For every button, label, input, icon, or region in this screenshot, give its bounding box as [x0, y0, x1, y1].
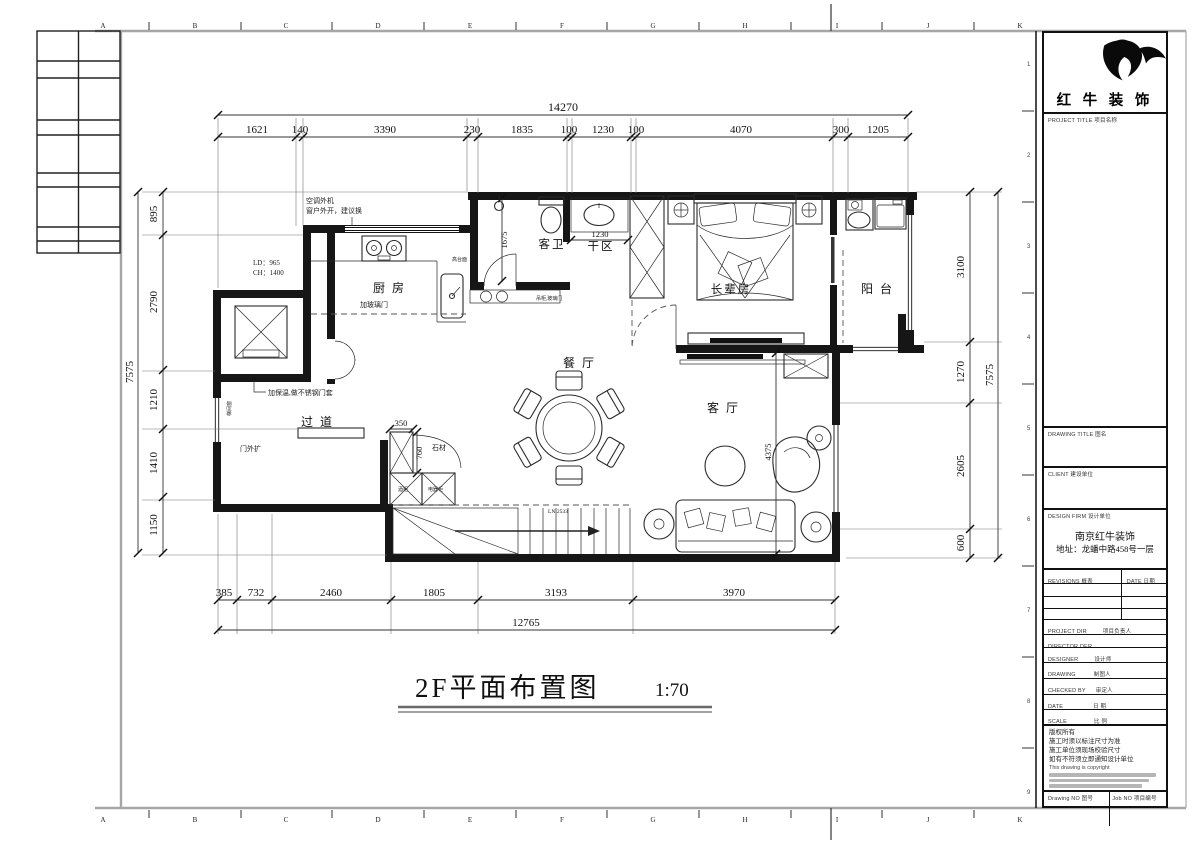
grid-letter: E — [468, 816, 472, 824]
grid-letter: K — [1017, 22, 1022, 30]
dim: 300 — [833, 124, 850, 136]
sheet-title: 2F平面布置图 1:70 — [398, 673, 712, 712]
note-high-counter: 高台面 — [452, 256, 467, 263]
grid-letters-bottom: A B C D E F G H I J K — [100, 816, 1022, 824]
chair — [596, 436, 625, 468]
grid-number: 8 — [1027, 699, 1031, 705]
copyright-line: 施工时须以标注尺寸为准 — [1049, 738, 1166, 746]
floor-plan-canvas: A B C D E F G H I J K A B C D E F G H I … — [0, 0, 1200, 843]
tb-label: Job NO 项目编号 — [1112, 794, 1156, 802]
stairs: LN:2533 — [393, 505, 632, 554]
washing-machine — [875, 198, 906, 229]
elevator: LD：965 CH：1400 — [235, 259, 287, 358]
grid-letter: F — [560, 816, 564, 824]
dim: 1210 — [148, 389, 160, 412]
grid-letter: G — [650, 22, 655, 30]
lounge-chair — [773, 437, 820, 492]
dim: 1270 — [955, 361, 967, 384]
tb-label: DRAWING — [1044, 670, 1076, 678]
note-ac-2: 窗户外开，建议换 — [306, 206, 362, 215]
dim: 1621 — [246, 124, 268, 136]
tb-label: PROJECT TITLE 项目名称 — [1044, 114, 1166, 124]
elevator-note-ld: LD：965 — [253, 259, 280, 267]
dim: 1835 — [511, 124, 534, 136]
speaker-left — [644, 509, 674, 539]
tb-row-director: DIRECTOR DER — [1044, 634, 1166, 647]
side-table — [807, 426, 831, 450]
tb-row-date: DATE日 期 — [1044, 694, 1166, 709]
dim: 230 — [464, 124, 481, 136]
dim: 3100 — [955, 256, 967, 279]
grid-letter: B — [193, 22, 198, 30]
tb-label: DESIGN FIRM 设计单位 — [1044, 510, 1166, 520]
room-label-living: 客厅 — [707, 400, 745, 415]
copyright-line-en: This drawing is copyright — [1049, 765, 1166, 771]
drawing-sheet: A B C D E F G H I J K A B C D E F G H I … — [0, 0, 1200, 843]
grid-letter: B — [193, 816, 198, 824]
grid-numbers-right: 1 2 3 4 5 6 7 8 9 — [1027, 62, 1031, 796]
grid-letter: H — [742, 22, 747, 30]
firm-name: 南京红牛装饰 — [1044, 528, 1166, 543]
note-hanging-cabinet: 吊柜,玻璃门 — [536, 295, 562, 302]
tb-row-scale: SCALE比 例 — [1044, 709, 1166, 724]
title-block: 红 牛 装 饰 PROJECT TITLE 项目名称 DRAWING TITLE… — [1042, 31, 1168, 808]
chair — [556, 466, 582, 485]
dim: 1805 — [423, 587, 446, 599]
dim: 895 — [148, 205, 160, 222]
sofa-pillow — [684, 508, 704, 528]
grid-number: 2 — [1027, 153, 1031, 159]
tb-label: Drawing NO 图号 — [1048, 794, 1093, 802]
pillow — [753, 203, 791, 227]
pillow — [699, 203, 737, 227]
stove — [362, 236, 406, 261]
note-wine: 酒柜 — [398, 486, 408, 493]
dim: 1410 — [148, 452, 160, 475]
grid-letter: K — [1017, 816, 1022, 824]
blurred-text-bar — [1049, 773, 1156, 777]
dim: 1205 — [867, 124, 890, 136]
toilet-bowl — [541, 207, 561, 233]
stair-note: LN:2533 — [548, 509, 568, 515]
dim-right-total: 7575 — [984, 364, 996, 387]
dim: 3390 — [374, 124, 397, 136]
grid-letters-top: A B C D E F G H I J K — [100, 22, 1022, 30]
sofa-pillow — [707, 513, 726, 532]
dim: 2460 — [320, 587, 343, 599]
chair — [513, 436, 542, 468]
grid-number: 6 — [1027, 517, 1031, 523]
grid-letter: H — [742, 816, 747, 824]
copyright-line: 施工单位须现场校验尺寸 — [1049, 747, 1166, 755]
dim: 3193 — [545, 587, 568, 599]
dining-room: 餐厅 — [513, 355, 625, 485]
chair — [513, 388, 542, 420]
dim: 4070 — [730, 124, 753, 136]
room-label-elder-room: 长辈房 — [711, 282, 752, 296]
tb-section-client: CLIENT 建设单位 — [1044, 466, 1166, 508]
tb-section-project: PROJECT TITLE 项目名称 — [1044, 112, 1166, 426]
grid-number: 3 — [1027, 244, 1031, 250]
note-door-out: 门外扩 — [240, 444, 261, 453]
dim-basin: 1230 — [592, 229, 609, 239]
elder-room: 长辈房 — [668, 194, 822, 344]
dim-right: 3100 1270 2605 600 7575 — [840, 188, 1002, 562]
dim: 3970 — [723, 587, 746, 599]
tb-section-drawing-title: DRAWING TITLE 图名 — [1044, 426, 1166, 466]
blurred-text-bar — [1049, 779, 1149, 783]
dim-bottom: 385 732 2460 1805 3193 3970 12765 — [214, 514, 839, 634]
note-ac-1: 空调外机 — [306, 196, 334, 205]
balcony-door-leaf — [831, 237, 835, 283]
grid-number: 7 — [1027, 608, 1031, 614]
tb-section-firm: DESIGN FIRM 设计单位 南京红牛装饰 地址：龙蟠中路458号一层 — [1044, 508, 1166, 568]
company-name: 红 牛 装 饰 — [1044, 89, 1166, 110]
grid-number: 1 — [1027, 62, 1031, 68]
dim: 2605 — [955, 455, 967, 478]
chair — [556, 371, 582, 390]
page-title: 2F平面布置图 — [415, 673, 600, 703]
corridor: 350 760 酒柜 电器柜 石材 过道 门外扩 梯间窗 加保温,做不锈钢门套 — [226, 377, 461, 505]
dim-left-total: 7575 — [124, 361, 136, 384]
ottoman — [705, 446, 745, 486]
company-logo — [1070, 37, 1192, 87]
dim-cab-w: 350 — [395, 418, 408, 428]
grid-letter: A — [100, 816, 105, 824]
grid-number: 9 — [1027, 790, 1031, 796]
dining-table — [536, 395, 602, 461]
note-stair-window: 梯间窗 — [226, 401, 233, 416]
blurred-text-bar — [1049, 784, 1142, 788]
bench — [298, 428, 364, 438]
grid-letter: D — [375, 22, 380, 30]
grid-letter: A — [100, 22, 105, 30]
firm-address: 地址：龙蟠中路458号一层 — [1044, 543, 1166, 555]
balcony: 阳台 — [843, 198, 906, 343]
note-appliance: 电器柜 — [428, 486, 443, 493]
dim: 140 — [292, 124, 309, 136]
speaker-right — [801, 512, 831, 542]
grid-letter: I — [836, 22, 839, 30]
tb-row-project-dir: PROJECT DIR 项目负责人 — [1044, 619, 1166, 634]
dim-bottom-total: 12765 — [512, 617, 540, 629]
sofa-pillow — [733, 508, 752, 527]
sofa-pillow — [756, 512, 776, 532]
dim-left: 895 2790 1210 1410 1150 7575 — [124, 188, 466, 557]
grid-letter: J — [927, 816, 930, 824]
note-stone: 石材 — [432, 443, 446, 452]
tb-label: 制图人 — [1076, 670, 1111, 678]
dim-bath-height: 1675 — [499, 232, 509, 249]
dim: 2790 — [148, 291, 160, 314]
tb-label: DRAWING TITLE 图名 — [1044, 428, 1166, 438]
dim: 1230 — [592, 124, 615, 136]
closet — [630, 196, 664, 345]
dim: 732 — [248, 587, 265, 599]
dim: 600 — [955, 534, 967, 551]
room-label-dry-area: 干区 — [588, 241, 615, 253]
tb-revisions: REVISIONS 概表 DATE 日期 — [1044, 568, 1166, 619]
margin-boxes — [37, 31, 120, 253]
tb-copyright: 版权所有 施工时须以标注尺寸为准 施工单位须现场校验尺寸 如有不符须立即通知设计… — [1044, 724, 1166, 790]
tv-bedroom — [710, 338, 782, 343]
tv-living — [687, 354, 763, 359]
room-label-guest-bath: 客卫 — [539, 237, 566, 251]
dim-top-total: 14270 — [548, 100, 578, 114]
grid-letter: C — [284, 816, 289, 824]
copyright-line: 版权所有 — [1049, 729, 1166, 737]
tb-row-designer: DESIGNER设计师 — [1044, 647, 1166, 662]
grid-letter: D — [375, 816, 380, 824]
grid-letter: I — [836, 816, 839, 824]
note-glass-door: 加玻璃门 — [360, 300, 388, 309]
dim-living: 4375 — [763, 444, 773, 461]
dim: 100 — [561, 124, 578, 136]
dim: 100 — [628, 124, 645, 136]
tb-label: CHECKED BY — [1044, 686, 1086, 694]
grid-letter: G — [650, 816, 655, 824]
grid-number: 5 — [1027, 426, 1031, 432]
tb-row-checked: CHECKED BY审定人 — [1044, 678, 1166, 694]
kitchen-door-leaf — [335, 341, 355, 361]
room-label-kitchen: 厨房 — [373, 280, 411, 295]
grid-letter: E — [468, 22, 472, 30]
dim: 385 — [216, 587, 233, 599]
elevator-note-ch: CH：1400 — [253, 269, 284, 277]
grid-letter: J — [927, 22, 930, 30]
tb-label: 审定人 — [1086, 686, 1113, 694]
room-label-corridor: 过道 — [301, 415, 339, 429]
grid-number: 4 — [1027, 335, 1031, 341]
grid-letter: F — [560, 22, 564, 30]
chair — [596, 388, 625, 420]
page-scale: 1:70 — [655, 680, 689, 701]
living-room: 客厅 4375 — [644, 349, 831, 558]
tb-label: CLIENT 建设单位 — [1044, 468, 1166, 478]
grid-letter: C — [284, 22, 289, 30]
tb-row-drawing: DRAWING制图人 — [1044, 662, 1166, 678]
room-label-balcony: 阳台 — [861, 281, 899, 296]
balcony-sink — [848, 212, 870, 228]
room-label-dining: 餐厅 — [563, 355, 601, 370]
copyright-line: 如有不符须立即通知设计单位 — [1049, 756, 1166, 764]
dim-cab-d: 760 — [414, 447, 424, 460]
tb-drawing-no: Drawing NO 图号 Job NO 项目编号 — [1044, 790, 1166, 808]
note-insulation: 加保温,做不锈钢门套 — [268, 388, 333, 397]
dim: 1150 — [148, 514, 160, 536]
